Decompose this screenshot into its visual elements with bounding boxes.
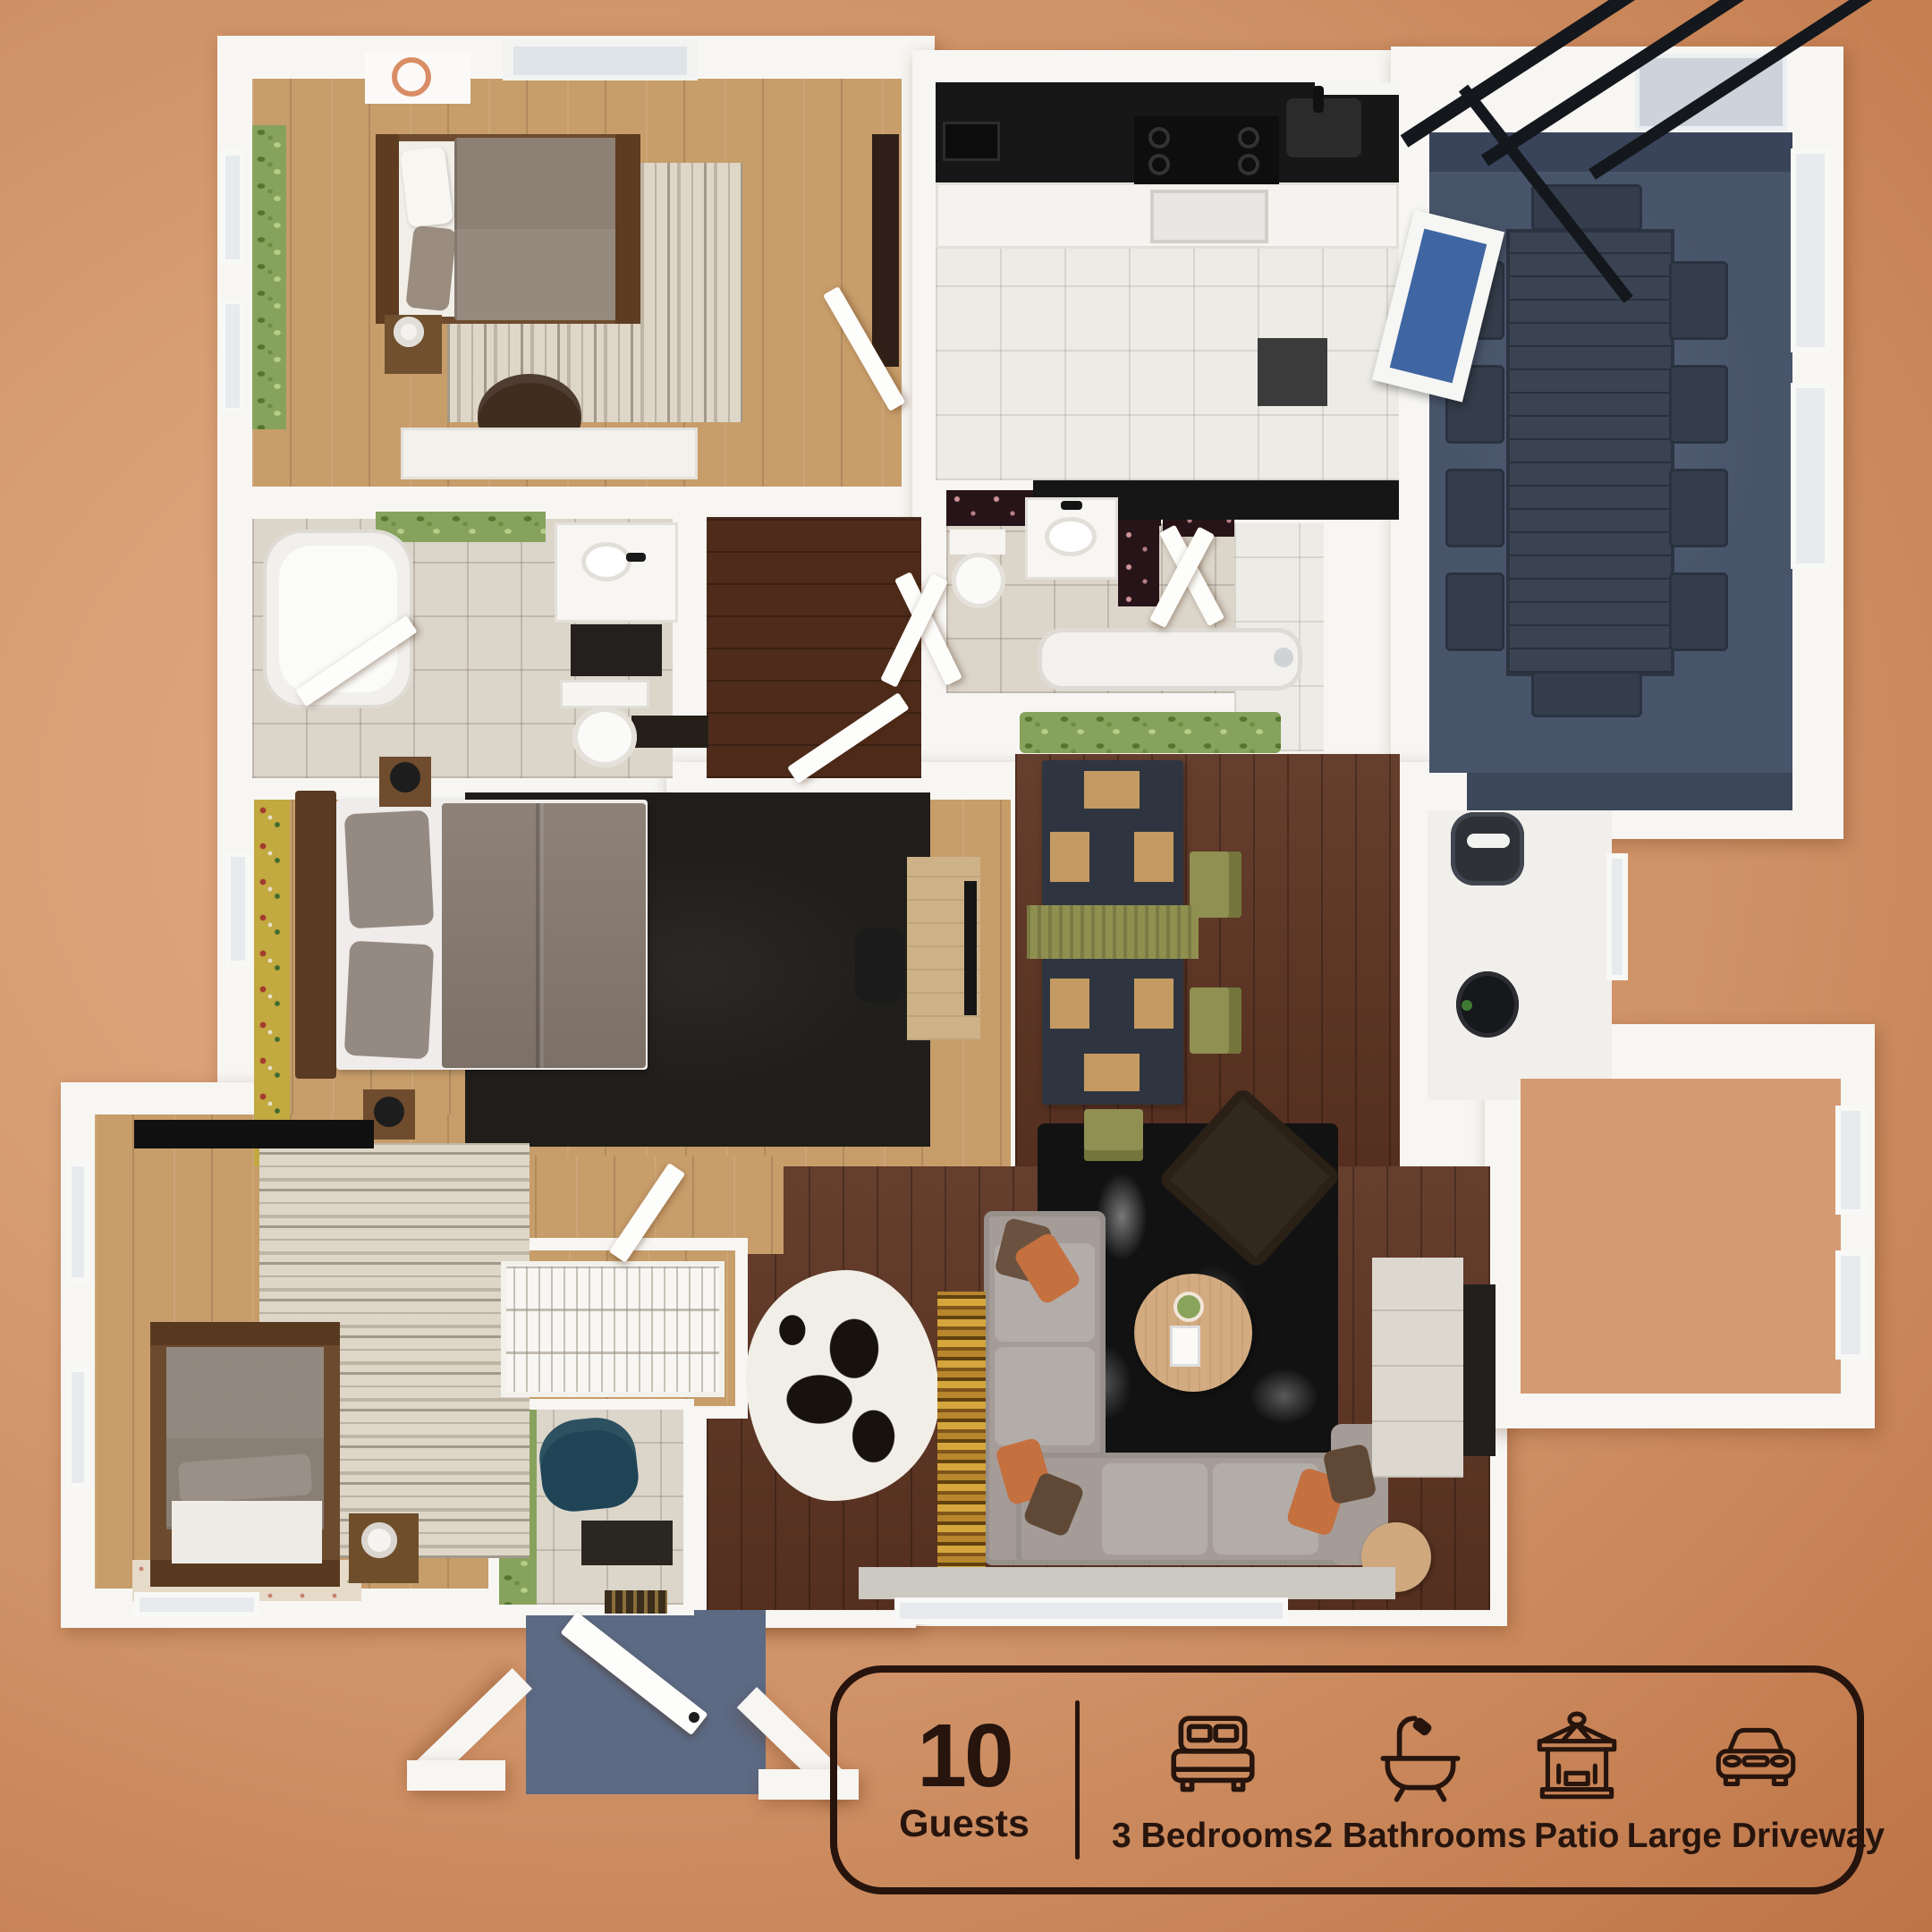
sofa-v-cushion-2 [995,1347,1095,1445]
bedroom1-skylight-glass [513,47,687,75]
bathroom2-tub [1038,628,1302,691]
patio-step [1467,773,1792,810]
features-row: 3 Bedrooms 2 Bathrooms [1106,1704,1890,1856]
feature-driveway: Large Driveway [1627,1704,1885,1856]
feature-bedrooms: 3 Bedrooms [1112,1704,1313,1856]
bathroom2-toilet-tank [950,530,1005,555]
bathroom2-tub-faucet [1274,648,1293,667]
feature-bedrooms-label: 3 Bedrooms [1112,1817,1313,1856]
patio-chair-right-2 [1669,365,1728,444]
master-duvet [442,803,646,1068]
master-pillow-1 [344,810,435,929]
fireplace-tile-pad [1372,1258,1463,1478]
feature-bathrooms-label: 2 Bathrooms [1313,1817,1526,1856]
living-back-wall-ledge [859,1567,1395,1599]
kitchen-burner-3 [1148,154,1170,175]
entry-cowhide-rug [746,1270,939,1501]
dining-chair-right-2 [1190,987,1241,1054]
kitchen-faucet [1313,86,1324,113]
feature-driveway-label: Large Driveway [1627,1817,1885,1856]
utility-grill [1451,812,1524,885]
utility-grill-handle [1467,834,1510,848]
patio-glazing-2 [1791,383,1830,569]
closet3-wire-shelf [501,1261,724,1397]
dining-bench [1020,712,1281,753]
bathroom1-toilet-tank [560,680,649,708]
bay-window-1 [1835,1106,1866,1215]
kitchen-mat [1258,338,1327,406]
card-divider [1075,1700,1080,1860]
closet1-mat [631,716,708,748]
kitchen-sink [1286,98,1361,157]
bed-icon [1163,1704,1263,1809]
bedroom1-vase [394,317,424,347]
patio-table [1506,229,1674,676]
dining-runner [1027,905,1199,959]
guests-count: 10 [880,1714,1048,1799]
bathroom2-sink [1045,517,1097,556]
master-window [225,852,250,966]
dining-placemat-l2 [1050,979,1089,1029]
coffee-table-plant [1177,1295,1200,1318]
dining-placemat-foot [1084,1054,1140,1091]
bathroom2-faucet [1061,501,1082,510]
dining-placemat-r2 [1134,979,1174,1029]
bedroom1-headboard [376,134,399,324]
patio-chair-left-3 [1445,469,1504,547]
bathroom2-floral-side [1118,526,1159,606]
info-card: 10 Guests 3 Bedrooms [830,1665,1864,1894]
guests-label: Guests [880,1802,1048,1846]
dining-placemat-r1 [1134,832,1174,882]
porch-step-left [407,1760,505,1791]
kitchen-burner-2 [1238,127,1259,148]
master-lamp-north [390,762,420,792]
car-icon [1706,1704,1806,1809]
bedroom3-clock [361,1522,397,1558]
sofa-h-cushion-1 [1102,1463,1207,1555]
bedroom1-pillow [400,146,453,227]
bedroom1-footboard [615,134,640,324]
bedroom1-window-2 [220,299,245,413]
bedroom1-duvet [454,138,617,320]
feature-patio-label: Patio [1534,1817,1619,1856]
bedroom3-headboard [150,1322,340,1345]
bay-window-2 [1835,1250,1866,1360]
master-pillow-2 [344,941,435,1060]
utility-smoker-knob [1462,1000,1472,1011]
bathroom1-cabinet [571,624,662,676]
bedroom3-footboard [150,1560,340,1587]
dining-placemat-head [1084,771,1140,809]
den-media-console [581,1521,673,1565]
bedroom3-window-2 [66,1367,89,1488]
kitchen-burner-1 [1148,127,1170,148]
porch-floor [526,1610,766,1794]
bedroom3-tv [134,1120,374,1148]
bedroom1-pillow-gray [405,225,456,312]
closet1-floor [707,517,921,778]
floor-plan-scene: 10 Guests 3 Bedrooms [0,0,1932,1932]
patio-chair-right-1 [1669,261,1728,340]
kitchen-microwave [943,122,1000,161]
feature-bathrooms: 2 Bathrooms [1313,1704,1526,1856]
front-door-knob [689,1712,699,1723]
bedroom1-window-1 [220,150,245,265]
bay-exterior [1521,1079,1841,1394]
bedroom3-window-1 [66,1161,89,1283]
patio-glazing-1 [1791,148,1830,352]
bedroom3-sheet [172,1501,322,1563]
master-headboard [295,791,336,1079]
feature-patio: Patio [1527,1704,1627,1856]
bathroom1-green-band [376,512,546,542]
kitchen-burner-4 [1238,154,1259,175]
bathroom2-toilet-bowl [952,553,1005,608]
bedroom3-window-south [134,1592,259,1617]
gazebo-icon [1527,1704,1627,1809]
bedroom1-green-wallpaper [252,125,286,429]
bathroom1-toilet-bowl [572,707,637,767]
utility-window [1606,853,1628,980]
dining-chair-foot [1084,1109,1143,1161]
patio-chair-right-3 [1669,469,1728,547]
patio-chair-left-4 [1445,572,1504,651]
bathroom1-faucet [626,553,646,562]
master-desk-tv [964,881,977,1015]
bedroom1-art-swirl [392,57,431,97]
living-tv-console [1463,1284,1496,1456]
kitchen-oven-door [1150,190,1268,243]
den-doormat [605,1590,667,1614]
master-floral-wallpaper [254,800,290,1166]
guests-block: 10 Guests [880,1714,1048,1846]
bathtub-icon [1370,1704,1470,1809]
bathroom1-sink [581,542,631,581]
bedroom1-dresser [401,428,698,479]
living-south-window [894,1597,1288,1624]
dining-placemat-l1 [1050,832,1089,882]
master-desk-chair [855,928,903,1002]
patio-bench-south [1531,671,1642,717]
entry-console [937,1292,986,1583]
coffee-table-book [1170,1326,1200,1367]
kitchen-fridge [1315,82,1399,95]
bedroom1-wardrobe [872,134,899,367]
master-lamp-south [374,1097,404,1127]
patio-chair-right-4 [1669,572,1728,651]
